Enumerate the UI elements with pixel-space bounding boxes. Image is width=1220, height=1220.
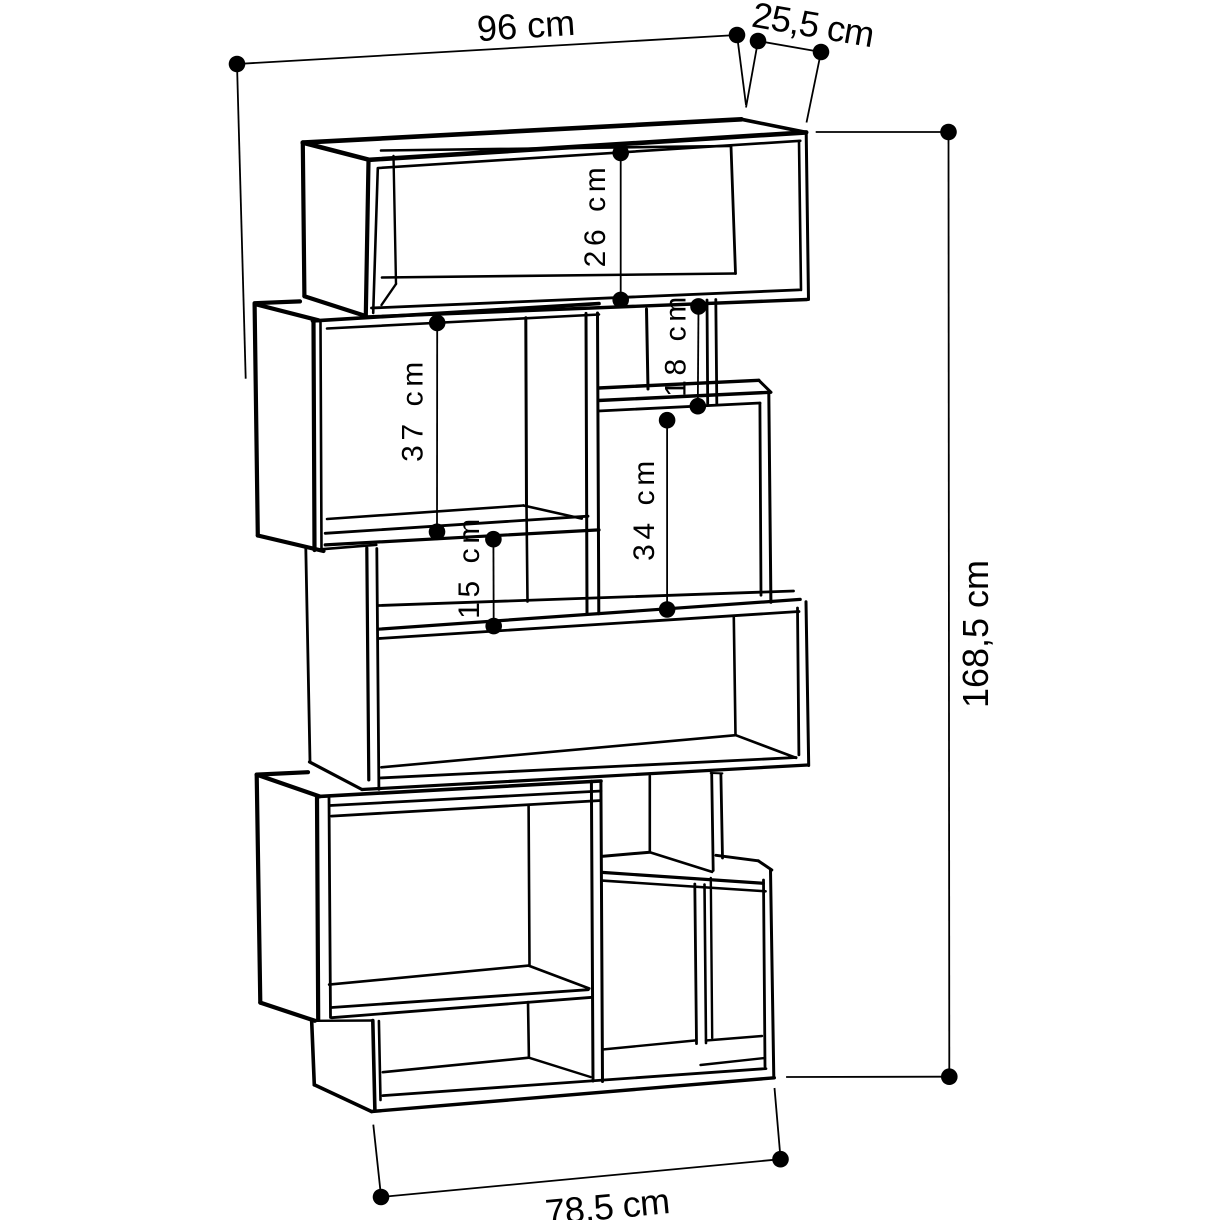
svg-text:96 cm: 96 cm: [476, 2, 577, 49]
svg-text:37 cm: 37 cm: [397, 357, 430, 462]
svg-text:34 cm: 34 cm: [628, 456, 661, 561]
svg-text:26 cm: 26 cm: [579, 163, 612, 268]
svg-text:168,5 cm: 168,5 cm: [955, 560, 996, 708]
svg-text:15 cm: 15 cm: [453, 514, 486, 619]
svg-text:18 cm: 18 cm: [660, 292, 693, 397]
